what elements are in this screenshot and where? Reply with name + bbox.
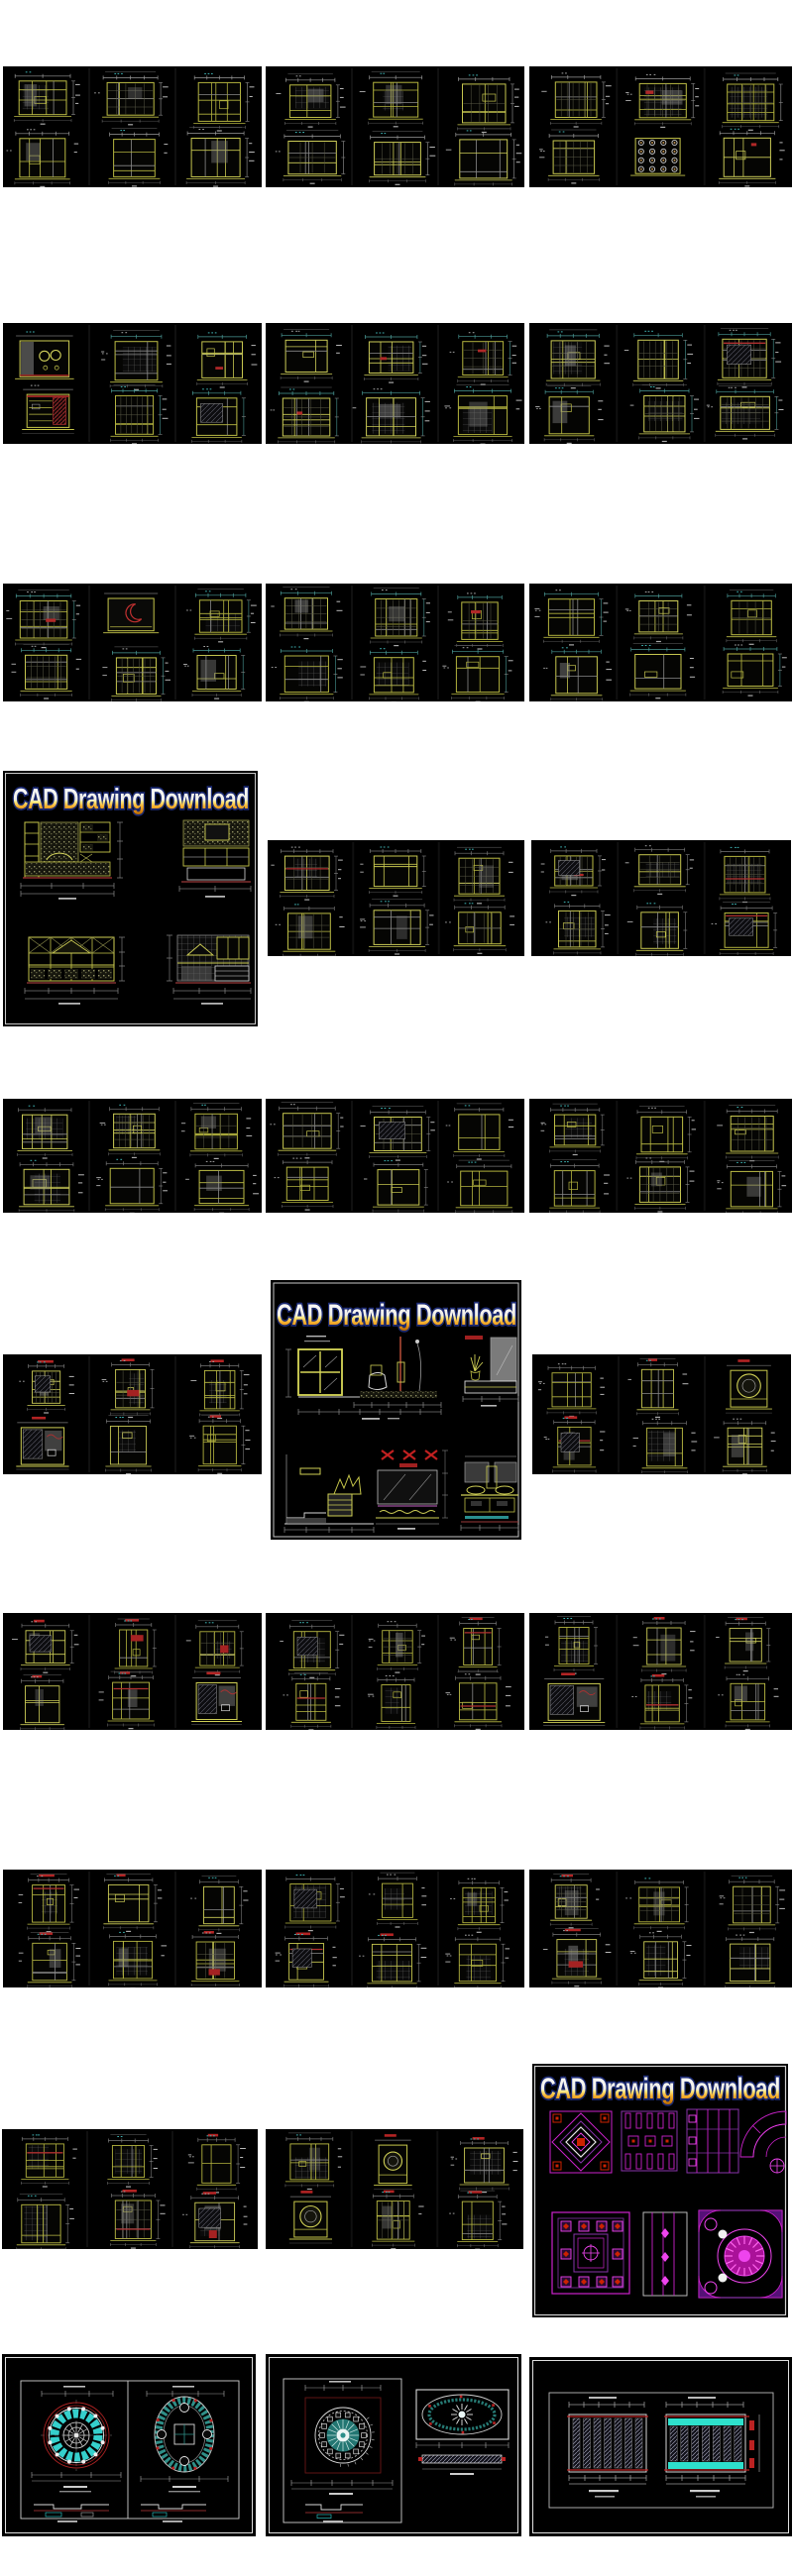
svg-text:CAD Drawing Download: CAD Drawing Download (540, 2073, 780, 2105)
svg-text:CAD Drawing Download: CAD Drawing Download (13, 784, 249, 815)
svg-text:CAD Drawing Download: CAD Drawing Download (277, 1299, 516, 1332)
